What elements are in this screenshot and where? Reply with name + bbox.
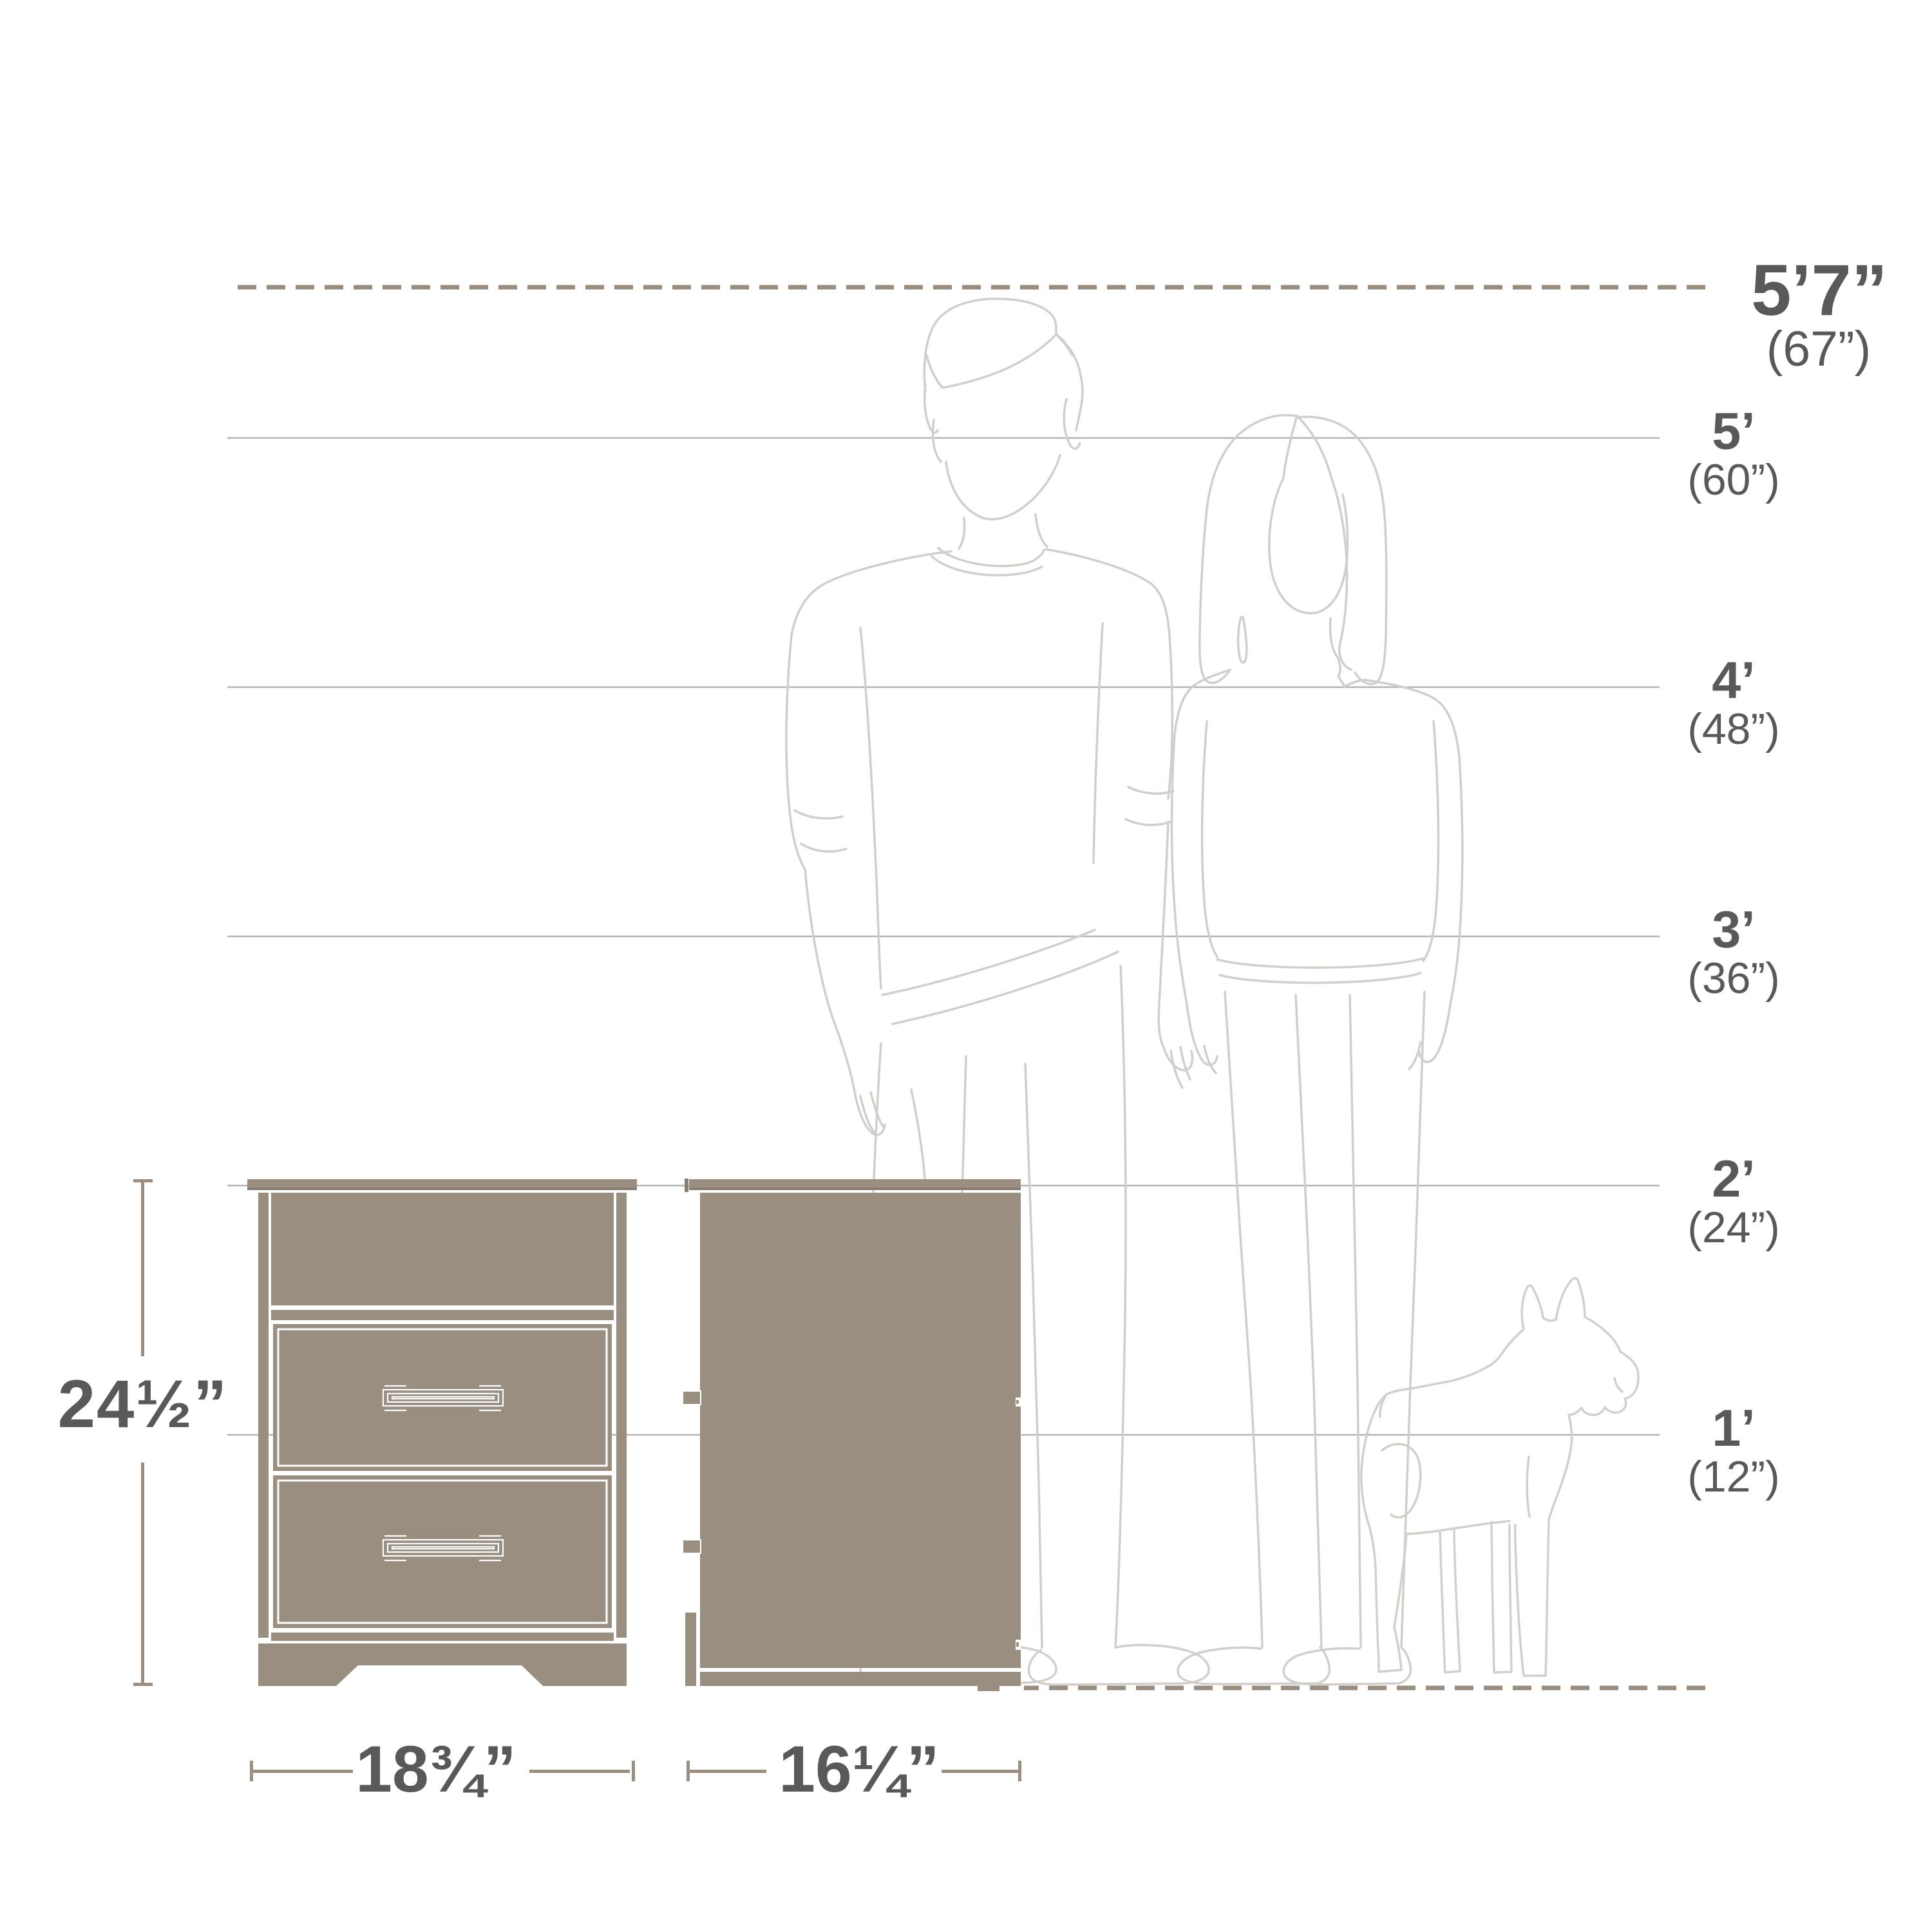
svg-text:18¾”: 18¾” <box>355 1732 516 1806</box>
svg-text:5’7”: 5’7” <box>1751 250 1888 330</box>
svg-text:2’: 2’ <box>1712 1150 1756 1208</box>
svg-text:(36”): (36”) <box>1687 954 1780 1003</box>
svg-text:(67”): (67”) <box>1766 321 1871 377</box>
svg-text:(24”): (24”) <box>1687 1203 1780 1252</box>
svg-text:5’: 5’ <box>1712 402 1756 460</box>
svg-text:(12”): (12”) <box>1687 1452 1780 1501</box>
svg-text:16¼”: 16¼” <box>779 1732 940 1806</box>
svg-text:3’: 3’ <box>1712 901 1756 959</box>
svg-text:(60”): (60”) <box>1687 455 1780 504</box>
svg-text:24½”: 24½” <box>58 1367 229 1442</box>
svg-text:(48”): (48”) <box>1687 705 1780 753</box>
svg-text:4’: 4’ <box>1712 652 1756 710</box>
svg-text:1’: 1’ <box>1712 1399 1756 1457</box>
